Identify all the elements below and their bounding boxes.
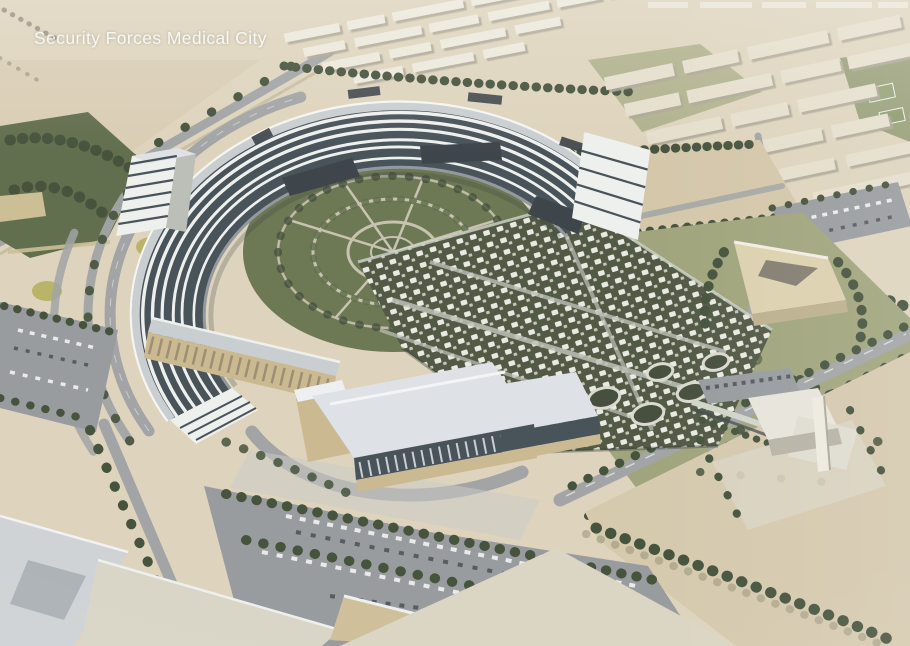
atmosphere-wash <box>0 0 910 646</box>
aerial-rendering: Security Forces Medical City <box>0 0 910 646</box>
scene-canvas <box>0 0 910 646</box>
caption-overlay: Security Forces Medical City <box>34 28 267 49</box>
